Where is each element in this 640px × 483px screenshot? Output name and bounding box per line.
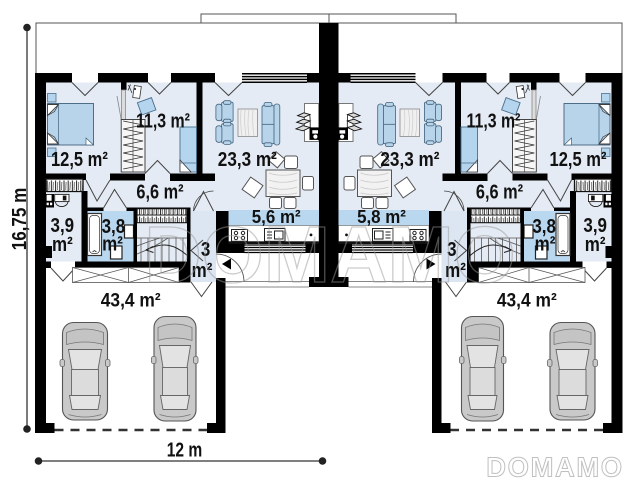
svg-text:12,5 m²: 12,5 m²: [51, 147, 108, 170]
svg-text:m²: m²: [102, 232, 123, 255]
svg-text:DOMAMO: DOMAMO: [144, 210, 515, 299]
svg-text:DOMAMO: DOMAMO: [486, 451, 623, 482]
svg-text:12 m: 12 m: [167, 438, 202, 461]
svg-text:16,75 m: 16,75 m: [7, 188, 30, 251]
svg-text:m²: m²: [585, 233, 606, 256]
svg-text:m²: m²: [52, 233, 73, 256]
svg-text:6,6 m²: 6,6 m²: [476, 180, 523, 203]
svg-text:23,3 m²: 23,3 m²: [380, 148, 439, 171]
svg-text:11,3 m²: 11,3 m²: [136, 109, 190, 132]
svg-text:23,3 m²: 23,3 m²: [218, 148, 277, 171]
svg-text:11,3 m²: 11,3 m²: [467, 109, 521, 132]
svg-text:m²: m²: [535, 232, 556, 255]
svg-text:6,6 m²: 6,6 m²: [136, 180, 183, 203]
svg-text:12,5 m²: 12,5 m²: [550, 147, 607, 170]
